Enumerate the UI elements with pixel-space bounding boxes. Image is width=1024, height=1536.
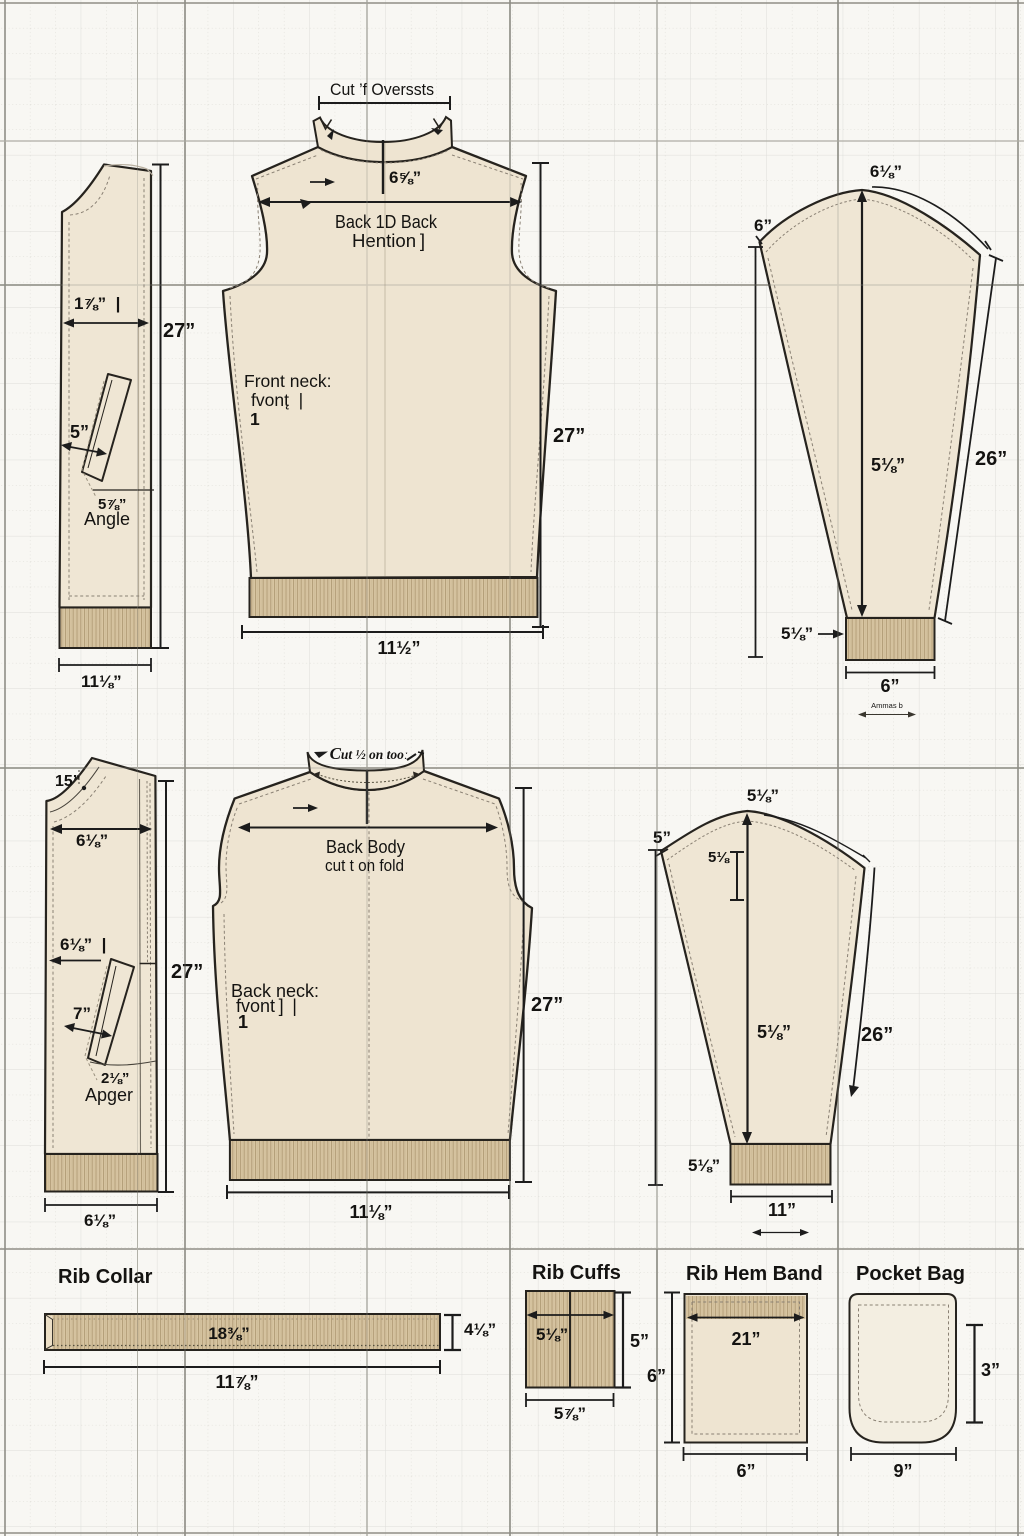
svg-text:15”: 15” — [55, 773, 81, 790]
svg-text:fvont̨ |: fvont̨ | — [251, 390, 303, 410]
svg-text:Front neck:: Front neck: — [244, 371, 332, 391]
svg-text:5”: 5” — [653, 828, 671, 847]
svg-text:cut t on fold: cut t on fold — [325, 856, 404, 875]
svg-text:Hention ]: Hention ] — [352, 231, 425, 251]
svg-text:5⅛: 5⅛ — [708, 849, 730, 866]
svg-text:5⅛”: 5⅛” — [747, 786, 779, 805]
svg-text:6”: 6” — [736, 1461, 755, 1481]
svg-text:11½”: 11½” — [377, 638, 420, 658]
svg-text:1⅞” |: 1⅞” | — [74, 294, 120, 313]
svg-text:5⅛”: 5⅛” — [536, 1325, 568, 1344]
svg-text:5⅛”: 5⅛” — [781, 624, 813, 643]
svg-text:6⅛”: 6⅛” — [870, 162, 902, 181]
svg-text:5⅛”: 5⅛” — [757, 1022, 791, 1042]
svg-text:11⅞”: 11⅞” — [215, 1372, 258, 1392]
svg-text:26”: 26” — [861, 1024, 893, 1046]
svg-text:7”: 7” — [73, 1004, 91, 1023]
svg-text:1: 1 — [250, 409, 260, 429]
svg-text:6”: 6” — [880, 676, 899, 696]
svg-text:26”: 26” — [975, 448, 1007, 470]
svg-text:5”: 5” — [630, 1331, 649, 1351]
svg-text:Pocket Bag: Pocket Bag — [856, 1263, 965, 1285]
svg-text:4⅛”: 4⅛” — [464, 1320, 496, 1339]
svg-text:11⅛”: 11⅛” — [349, 1202, 392, 1222]
svg-text:6⅛”: 6⅛” — [84, 1211, 116, 1230]
svg-text:5⅛”: 5⅛” — [871, 455, 905, 475]
svg-text:6”: 6” — [754, 216, 772, 235]
svg-text:27”: 27” — [531, 994, 563, 1016]
svg-text:Apger: Apger — [85, 1085, 133, 1105]
svg-text:27”: 27” — [163, 320, 195, 342]
svg-text:6⅝”: 6⅝” — [389, 168, 421, 187]
svg-text:3”: 3” — [981, 1360, 1000, 1380]
svg-text:Back Body: Back Body — [326, 837, 405, 857]
svg-text:Ammas b: Ammas b — [871, 701, 903, 710]
svg-text:Rib Cuffs: Rib Cuffs — [532, 1262, 621, 1284]
svg-text:6⅛”: 6⅛” — [76, 831, 108, 850]
svg-text:18⅜”: 18⅜” — [208, 1324, 250, 1343]
svg-text:21”: 21” — [731, 1329, 760, 1349]
svg-text:Cut ½ on tooː: Cut ½ on tooː — [330, 744, 409, 763]
svg-text:6⅛” |: 6⅛” | — [60, 935, 106, 954]
svg-text:1: 1 — [238, 1012, 248, 1032]
svg-text:27”: 27” — [553, 425, 585, 447]
svg-text:Back 1D Back: Back 1D Back — [335, 212, 438, 232]
svg-text:Rib Hem Band: Rib Hem Band — [686, 1263, 823, 1285]
svg-text:Rib Collar: Rib Collar — [58, 1266, 153, 1288]
svg-text:5”: 5” — [70, 422, 89, 442]
svg-text:9”: 9” — [893, 1461, 912, 1481]
svg-text:Cut ’f Overssts: Cut ’f Overssts — [330, 80, 434, 99]
svg-text:Angle: Angle — [84, 509, 130, 529]
svg-text:11”: 11” — [768, 1200, 796, 1220]
svg-text:5⅞”: 5⅞” — [554, 1404, 586, 1423]
svg-text:11⅛”: 11⅛” — [81, 672, 122, 691]
svg-text:5⅛”: 5⅛” — [688, 1156, 720, 1175]
svg-text:27”: 27” — [171, 961, 203, 983]
